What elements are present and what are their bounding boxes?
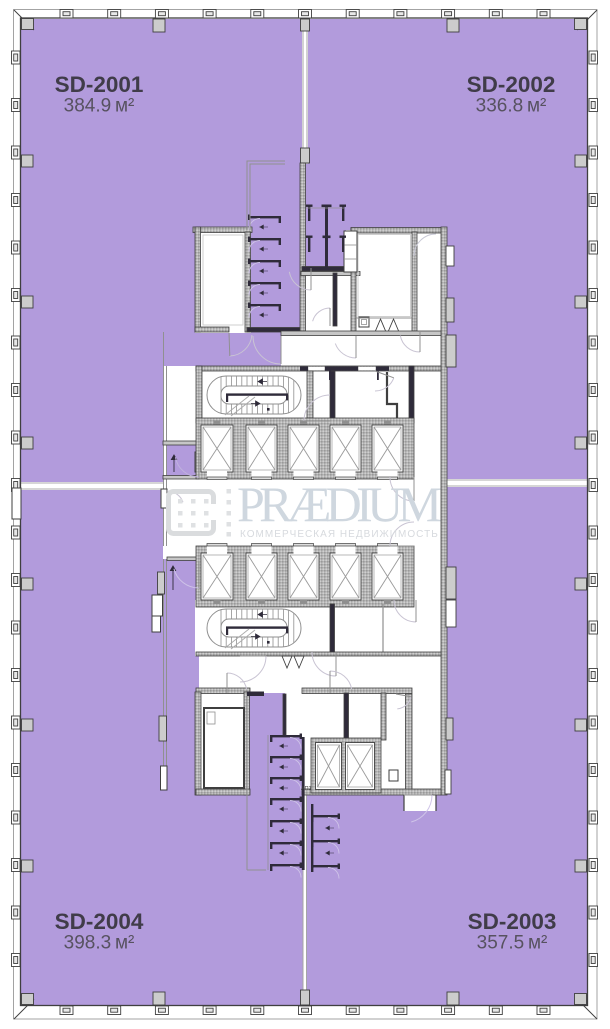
svg-text:336.8 м²: 336.8 м² [476, 96, 547, 117]
svg-text:КОММЕРЧЕСКАЯ НЕДВИЖИМОСТЬ: КОММЕРЧЕСКАЯ НЕДВИЖИМОСТЬ [240, 529, 440, 540]
svg-text:АП1: АП1 [301, 786, 312, 792]
svg-text:SD-2003: SD-2003 [468, 909, 557, 934]
svg-text:398.3 м²: 398.3 м² [64, 933, 135, 954]
svg-text:SD-2001: SD-2001 [55, 72, 144, 97]
svg-text:PRÆDIUM: PRÆDIUM [237, 476, 442, 532]
svg-text:357.5 м²: 357.5 м² [477, 933, 548, 954]
svg-text:384.9 м²: 384.9 м² [64, 96, 135, 117]
svg-text:SD-2002: SD-2002 [467, 72, 556, 97]
svg-text:SD-2004: SD-2004 [55, 909, 144, 934]
